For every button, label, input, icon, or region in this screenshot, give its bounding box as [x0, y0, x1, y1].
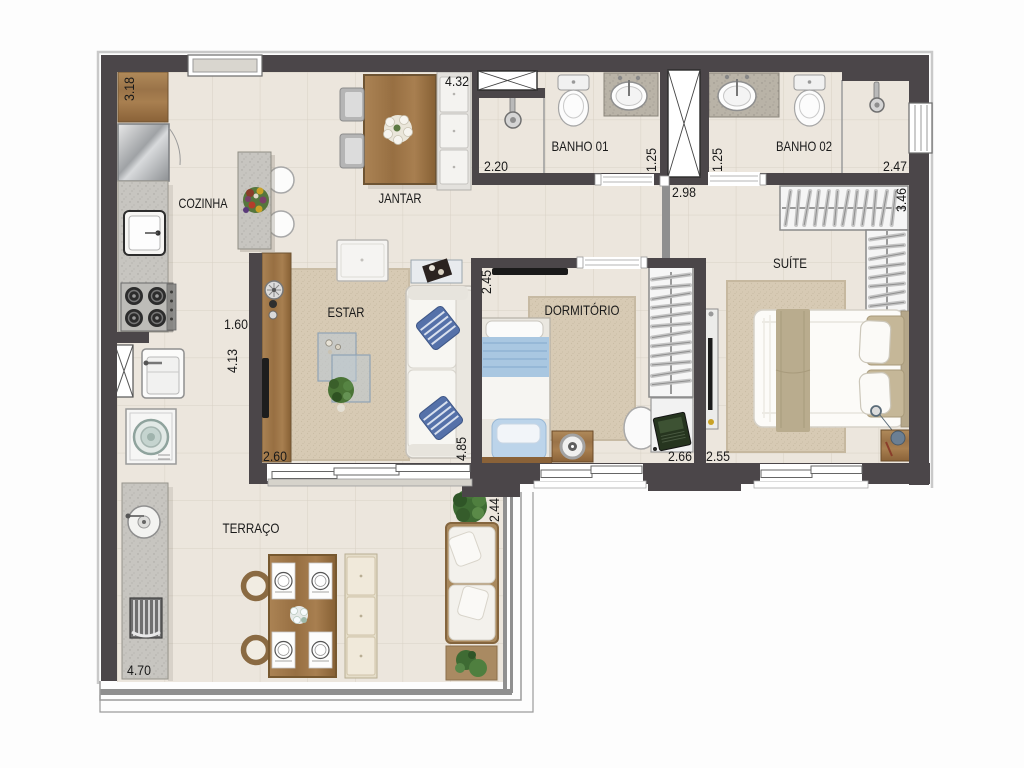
- svg-text:BANHO 02: BANHO 02: [776, 138, 832, 154]
- svg-text:4.32: 4.32: [445, 74, 469, 89]
- svg-text:4.85: 4.85: [454, 437, 469, 461]
- svg-text:COZINHA: COZINHA: [179, 195, 229, 211]
- svg-text:DORMITÓRIO: DORMITÓRIO: [545, 302, 620, 318]
- svg-text:1.25: 1.25: [644, 148, 659, 172]
- svg-text:3.18: 3.18: [122, 77, 137, 101]
- svg-text:2.44: 2.44: [487, 498, 502, 522]
- svg-text:2.60: 2.60: [263, 449, 287, 464]
- svg-text:1.60: 1.60: [224, 317, 248, 332]
- svg-text:2.20: 2.20: [484, 159, 508, 174]
- svg-text:2.47: 2.47: [883, 159, 907, 174]
- svg-text:JANTAR: JANTAR: [379, 190, 422, 206]
- svg-text:2.98: 2.98: [672, 185, 696, 200]
- svg-text:4.13: 4.13: [225, 349, 240, 373]
- svg-text:2.55: 2.55: [706, 449, 730, 464]
- svg-text:2.66: 2.66: [668, 449, 692, 464]
- svg-text:4.70: 4.70: [127, 663, 151, 678]
- svg-text:1.25: 1.25: [710, 148, 725, 172]
- svg-text:ESTAR: ESTAR: [328, 304, 365, 320]
- svg-text:3.46: 3.46: [894, 188, 909, 212]
- svg-text:2.45: 2.45: [479, 270, 494, 294]
- svg-text:SUÍTE: SUÍTE: [773, 255, 807, 271]
- svg-text:BANHO 01: BANHO 01: [552, 138, 609, 154]
- svg-text:TERRAÇO: TERRAÇO: [223, 520, 280, 536]
